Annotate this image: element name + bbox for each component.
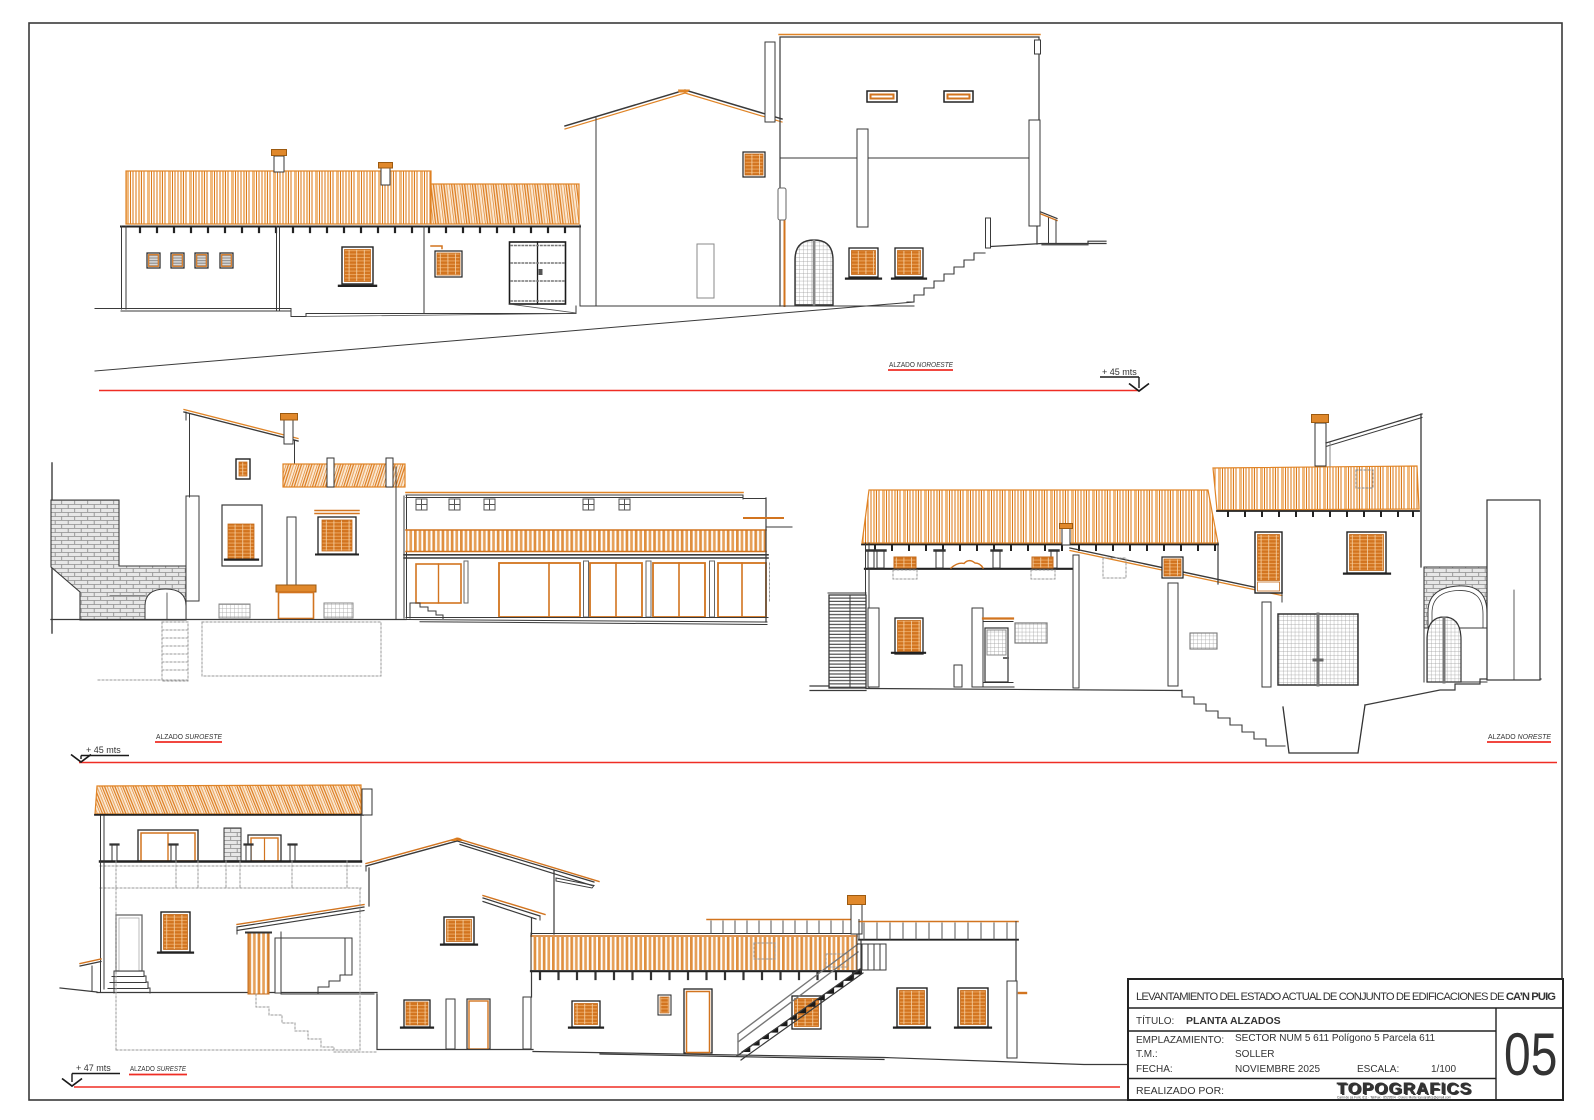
svg-text:+ 47 mts: + 47 mts (76, 1063, 111, 1073)
svg-text:NOVIEMBRE 2025: NOVIEMBRE 2025 (1235, 1064, 1320, 1075)
svg-text:1/100: 1/100 (1431, 1064, 1456, 1075)
svg-text:FECHA:: FECHA: (1136, 1064, 1173, 1075)
svg-text:ALZADO NORESTE: ALZADO NORESTE (1488, 732, 1552, 741)
svg-text:+ 45 mts: + 45 mts (86, 745, 121, 755)
svg-text:EMPLAZAMIENTO:: EMPLAZAMIENTO: (1136, 1035, 1224, 1046)
svg-text:05: 05 (1504, 1021, 1557, 1088)
svg-text:SECTOR NUM 5 611 Polígono 5 Pa: SECTOR NUM 5 611 Polígono 5 Parcela 611 (1235, 1033, 1436, 1044)
svg-text:T.M.:: T.M.: (1136, 1049, 1158, 1060)
svg-text:ALZADO SUROESTE: ALZADO SUROESTE (156, 732, 223, 741)
svg-text:Camí de sa Font, 611 · Tel/Fax: Camí de sa Font, 611 · Tel/Fax · 8529504… (1337, 1096, 1451, 1100)
svg-text:ALZADO NOROESTE: ALZADO NOROESTE (889, 360, 954, 369)
svg-text:REALIZADO POR:: REALIZADO POR: (1136, 1085, 1224, 1097)
svg-text:LEVANTAMIENTO DEL ESTADO ACTUA: LEVANTAMIENTO DEL ESTADO ACTUAL DE CONJU… (1136, 991, 1556, 1003)
svg-text:TÍTULO:: TÍTULO: (1136, 1014, 1174, 1027)
svg-text:SOLLER: SOLLER (1235, 1049, 1274, 1060)
svg-text:ESCALA:: ESCALA: (1357, 1064, 1399, 1075)
svg-text:PLANTA ALZADOS: PLANTA ALZADOS (1186, 1015, 1281, 1027)
svg-text:ALZADO SURESTE: ALZADO SURESTE (130, 1064, 187, 1073)
svg-text:+ 45 mts: + 45 mts (1102, 367, 1137, 377)
